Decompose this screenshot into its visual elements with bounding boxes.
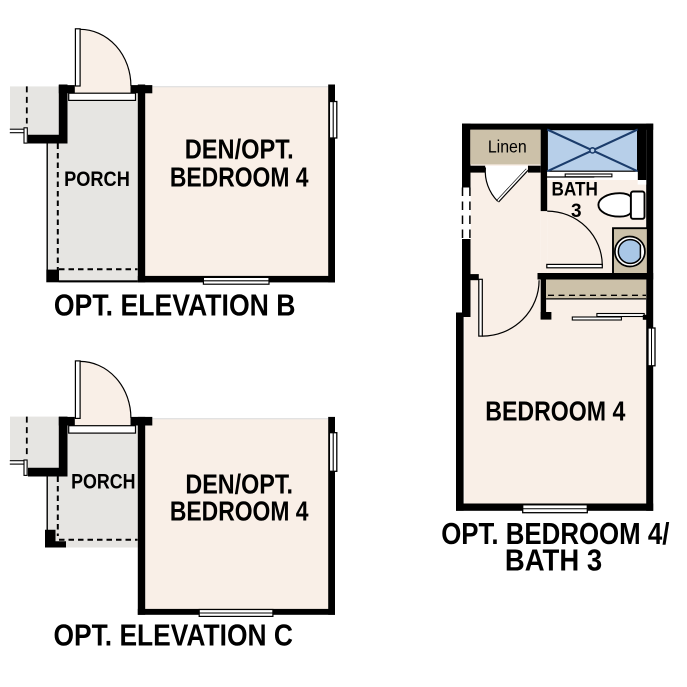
svg-text:BATH: BATH (552, 180, 598, 201)
svg-text:BEDROOM 4: BEDROOM 4 (170, 496, 309, 527)
svg-text:DEN/OPT.: DEN/OPT. (185, 133, 294, 164)
svg-text:BEDROOM 4: BEDROOM 4 (170, 162, 309, 193)
svg-text:Linen: Linen (488, 137, 527, 157)
svg-text:PORCH: PORCH (64, 167, 130, 191)
svg-text:PORCH: PORCH (71, 470, 135, 494)
svg-text:OPT. ELEVATION B: OPT. ELEVATION B (54, 288, 296, 323)
svg-text:BEDROOM 4: BEDROOM 4 (485, 396, 626, 427)
svg-text:OPT. ELEVATION C: OPT. ELEVATION C (54, 618, 293, 653)
svg-text:BATH 3: BATH 3 (505, 542, 602, 577)
